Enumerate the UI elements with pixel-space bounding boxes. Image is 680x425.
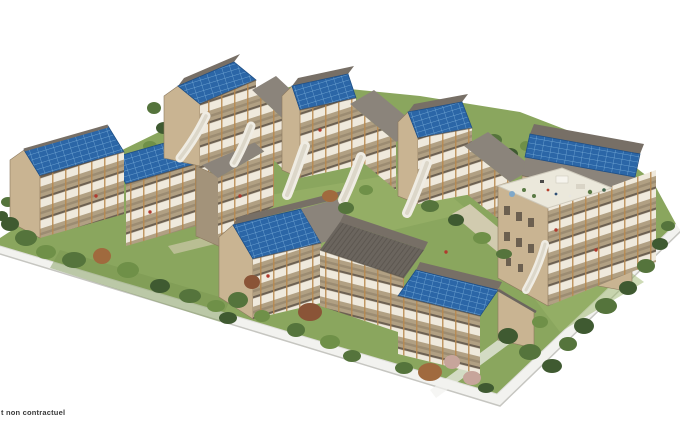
back-row-building-2 bbox=[282, 66, 356, 178]
facade-posts bbox=[300, 98, 356, 178]
architectural-rendering-canvas: t non contractuel bbox=[0, 0, 680, 425]
disclaimer-text: t non contractuel bbox=[1, 408, 65, 417]
site-rendering bbox=[0, 0, 680, 425]
